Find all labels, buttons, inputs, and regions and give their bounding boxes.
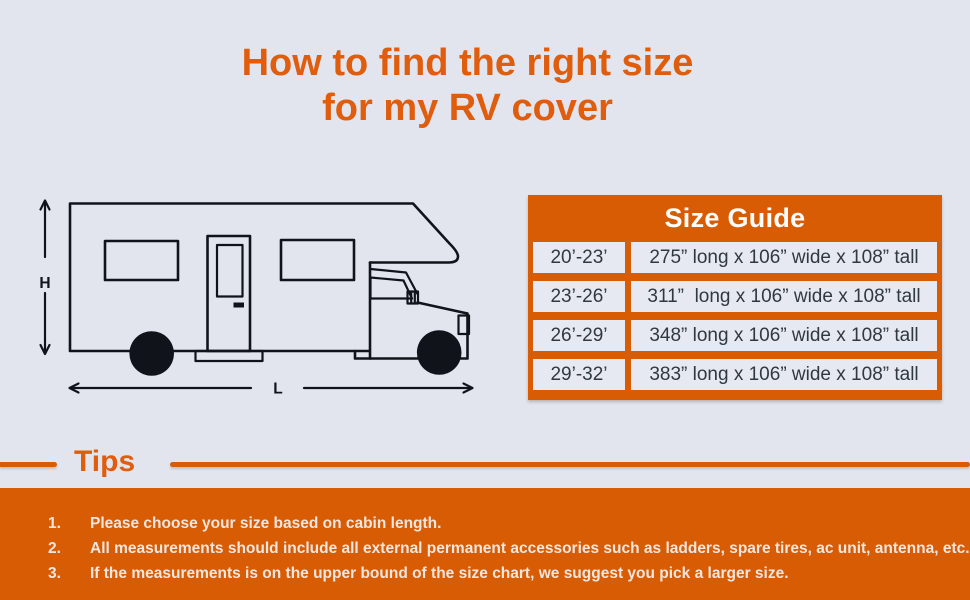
tip-number: 1. xyxy=(0,515,90,533)
size-guide-title: Size Guide xyxy=(533,195,937,242)
door-handle xyxy=(234,303,245,308)
length-dimension-label: L xyxy=(273,381,282,398)
height-dimension-label: H xyxy=(39,275,50,292)
tip-text: All measurements should include all exte… xyxy=(90,540,970,558)
door-window xyxy=(217,245,243,297)
side-mirror-detail-lines xyxy=(411,292,415,304)
tips-footer: 1. Please choose your size based on cabi… xyxy=(0,488,970,600)
table-row: 20’-23’ 275” long x 106” wide x 108” tal… xyxy=(533,242,937,273)
rv-diagram: H L xyxy=(20,180,500,410)
entry-step xyxy=(196,351,263,361)
dimensions-cell: 311” long x 106” wide x 108” tall xyxy=(631,281,937,312)
size-guide-table: Size Guide 20’-23’ 275” long x 106” wide… xyxy=(528,195,942,400)
front-side-window xyxy=(281,240,354,280)
tip-number: 3. xyxy=(0,565,90,583)
front-wheel xyxy=(417,330,462,375)
cab-side-window xyxy=(371,278,413,299)
tip-number: 2. xyxy=(0,540,90,558)
list-item: 2. All measurements should include all e… xyxy=(0,536,970,561)
size-range-cell: 29’-32’ xyxy=(533,359,625,390)
rv-cover-size-infographic: How to find the right size for my RV cov… xyxy=(0,0,970,600)
page-title-line2: for my RV cover xyxy=(0,86,935,131)
table-row: 29’-32’ 383” long x 106” wide x 108” tal… xyxy=(533,359,937,390)
rear-wheel xyxy=(129,331,174,376)
table-row: 26’-29’ 348” long x 106” wide x 108” tal… xyxy=(533,320,937,351)
rv-body-outline xyxy=(70,204,458,352)
list-item: 1. Please choose your size based on cabi… xyxy=(0,511,970,536)
tip-text: If the measurements is on the upper boun… xyxy=(90,565,970,583)
cab-roof-and-a-pillar-line xyxy=(371,269,418,294)
size-range-cell: 20’-23’ xyxy=(533,242,625,273)
tips-divider-right xyxy=(170,462,970,467)
tip-text: Please choose your size based on cabin l… xyxy=(90,515,970,533)
list-item: 3. If the measurements is on the upper b… xyxy=(0,561,970,586)
tips-heading: Tips xyxy=(74,446,135,478)
tips-divider-left xyxy=(0,462,57,467)
page-title-line1: How to find the right size xyxy=(0,41,935,86)
dimensions-cell: 383” long x 106” wide x 108” tall xyxy=(631,359,937,390)
dimensions-cell: 348” long x 106” wide x 108” tall xyxy=(631,320,937,351)
size-range-cell: 26’-29’ xyxy=(533,320,625,351)
rear-side-window xyxy=(105,241,178,280)
dimensions-cell: 275” long x 106” wide x 108” tall xyxy=(631,242,937,273)
entry-door xyxy=(208,236,251,351)
table-row: 23’-26’ 311” long x 106” wide x 108” tal… xyxy=(533,281,937,312)
page-title: How to find the right size for my RV cov… xyxy=(0,41,935,131)
size-range-cell: 23’-26’ xyxy=(533,281,625,312)
